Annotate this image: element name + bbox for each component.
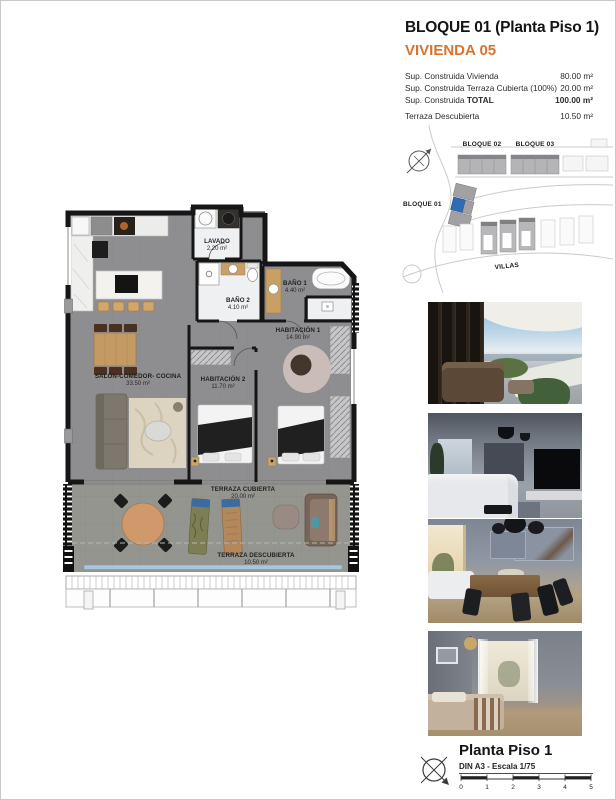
area-value: 10.50 m²: [560, 110, 593, 122]
pouf: [273, 505, 299, 529]
label-bloque03: BLOQUE 03: [516, 141, 555, 148]
floor-plan: LAVADO 2.20 m² BAÑO 2 4.10 m² BAÑO 1 4.4…: [58, 199, 366, 619]
armchair: [291, 355, 312, 376]
outline-buildings: [563, 139, 608, 171]
tv-console-shape: [526, 491, 582, 500]
photo-terrace: [428, 302, 582, 404]
room-label-bano2: BAÑO 2: [226, 297, 250, 304]
dryer-icon: [223, 213, 235, 225]
chair-shape: [511, 592, 532, 622]
pendant-lamp-shape: [528, 521, 544, 534]
wardrobe-hab1-upper: [330, 326, 350, 374]
coffee-table-shape: [484, 505, 512, 514]
wall-pier: [65, 429, 73, 443]
range-appliance: [92, 241, 108, 258]
svg-text:11.70 m²: 11.70 m²: [211, 384, 234, 390]
dining-set: [94, 324, 137, 375]
room-label-hab2: HABITACIÓN 2: [201, 375, 246, 383]
wardrobe-hab2: [191, 350, 231, 365]
toilet: [248, 269, 258, 282]
sink: [229, 265, 238, 274]
pendant-lamp-shape: [498, 427, 514, 439]
scale-tick: 0: [459, 784, 463, 791]
wall-art-shape: [490, 531, 526, 559]
coffee-table: [145, 421, 171, 441]
wardrobe-hab1-lower: [330, 396, 350, 458]
area-value: 20.00 m²: [560, 82, 593, 94]
railing: [66, 576, 356, 609]
terrace-sofa: [305, 494, 337, 546]
bloque-02-building: [458, 155, 506, 174]
cooktop: [115, 275, 138, 293]
photo-dining-room: [428, 519, 582, 623]
svg-text:4.40 m²: 4.40 m²: [285, 288, 305, 294]
area-label: Sup. Construida Terraza Cubierta (100%): [405, 82, 557, 94]
photo-living-room: [428, 413, 582, 518]
shower: [199, 263, 219, 285]
scale-tick: 5: [589, 784, 593, 791]
side-table: [173, 402, 183, 412]
glass-balustrade: [84, 565, 342, 570]
greenery-shape: [498, 661, 520, 687]
scale-tick: 3: [537, 784, 541, 791]
area-row: Sup. Construida Vivienda 80.00 m²: [405, 70, 593, 82]
unit-title: VIVIENDA 05: [405, 42, 593, 59]
room-label-terraza-cubierta: TERRAZA CUBIERTA: [211, 486, 276, 493]
bed-2: [191, 405, 252, 466]
footer-compass-icon: [413, 749, 455, 791]
curtain-shape: [528, 639, 538, 703]
site-plan: BLOQUE 02 BLOQUE 03 BLOQUE 01 VILLAS: [395, 125, 613, 293]
label-bloque02: BLOQUE 02: [463, 141, 502, 148]
table-shape: [508, 380, 534, 394]
area-row: Sup. Construida Terraza Cubierta (100%) …: [405, 82, 593, 94]
sink: [269, 284, 279, 294]
room-label-terraza-descubierta: TERRAZA DESCUBIERTA: [217, 552, 295, 559]
striped-throw-shape: [474, 698, 500, 730]
bloque-01-building: [446, 183, 478, 228]
wall-pier: [65, 299, 73, 313]
plan-sheet-page: BLOQUE 01 (Planta Piso 1) VIVIENDA 05 Su…: [0, 0, 616, 800]
svg-text:4.10 m²: 4.10 m²: [228, 305, 248, 311]
scale-tick: 4: [563, 784, 567, 791]
dining-table: [94, 333, 136, 366]
wicker-sofa-shape: [442, 362, 504, 402]
area-label: Sup. Construida Vivienda: [405, 70, 498, 82]
oven-glow: [120, 222, 128, 230]
scale-tick: 2: [511, 784, 515, 791]
header: BLOQUE 01 (Planta Piso 1) VIVIENDA 05 Su…: [405, 19, 593, 122]
pendant-lamp-shape: [520, 433, 530, 441]
north-compass-icon: [407, 149, 431, 173]
room-label-salon: SALÓN-COMEDOR- COCINA: [95, 372, 182, 380]
area-table: Sup. Construida Vivienda 80.00 m² Sup. C…: [405, 70, 593, 122]
area-value: 80.00 m²: [560, 70, 593, 82]
pillow-shape: [432, 692, 466, 702]
sofa-area: [96, 394, 186, 469]
room-label-bano1: BAÑO 1: [283, 280, 307, 287]
wall-art-shape: [436, 647, 458, 664]
page-title: BLOQUE 01 (Planta Piso 1): [405, 19, 593, 37]
scale-bar: 0 1 2 3 4 5: [459, 773, 593, 791]
area-row: Terraza Descubierta 10.50 m²: [405, 110, 593, 122]
tv-shape: [534, 449, 580, 489]
area-row-total: Sup. Construida TOTAL 100.00 m²: [405, 94, 593, 106]
svg-text:14.90 m²: 14.90 m²: [286, 335, 310, 341]
bathtub: [312, 268, 350, 289]
area-label: Sup. Construida TOTAL: [405, 94, 494, 106]
room-label-hab1: HABITACIÓN 1: [276, 326, 321, 334]
svg-text:20.00 m²: 20.00 m²: [231, 494, 255, 500]
area-value: 100.00 m²: [555, 94, 593, 106]
room-label-lavado: LAVADO: [204, 238, 230, 245]
scale-tick: 1: [485, 784, 489, 791]
label-bloque01: BLOQUE 01: [403, 201, 442, 208]
rattan-lamp-shape: [464, 637, 477, 650]
footer-title: Planta Piso 1: [459, 742, 552, 759]
hatched-wall: [352, 283, 359, 333]
svg-text:10.50 m²: 10.50 m²: [244, 560, 268, 566]
svg-text:2.20 m²: 2.20 m²: [207, 246, 227, 252]
photo-bedroom: [428, 631, 582, 736]
area-label: Terraza Descubierta: [405, 110, 479, 122]
round-table: [122, 503, 164, 545]
bloque-03-building: [511, 155, 559, 174]
label-villas: VILLAS: [494, 262, 519, 272]
svg-text:33.50 m²: 33.50 m²: [126, 381, 150, 387]
